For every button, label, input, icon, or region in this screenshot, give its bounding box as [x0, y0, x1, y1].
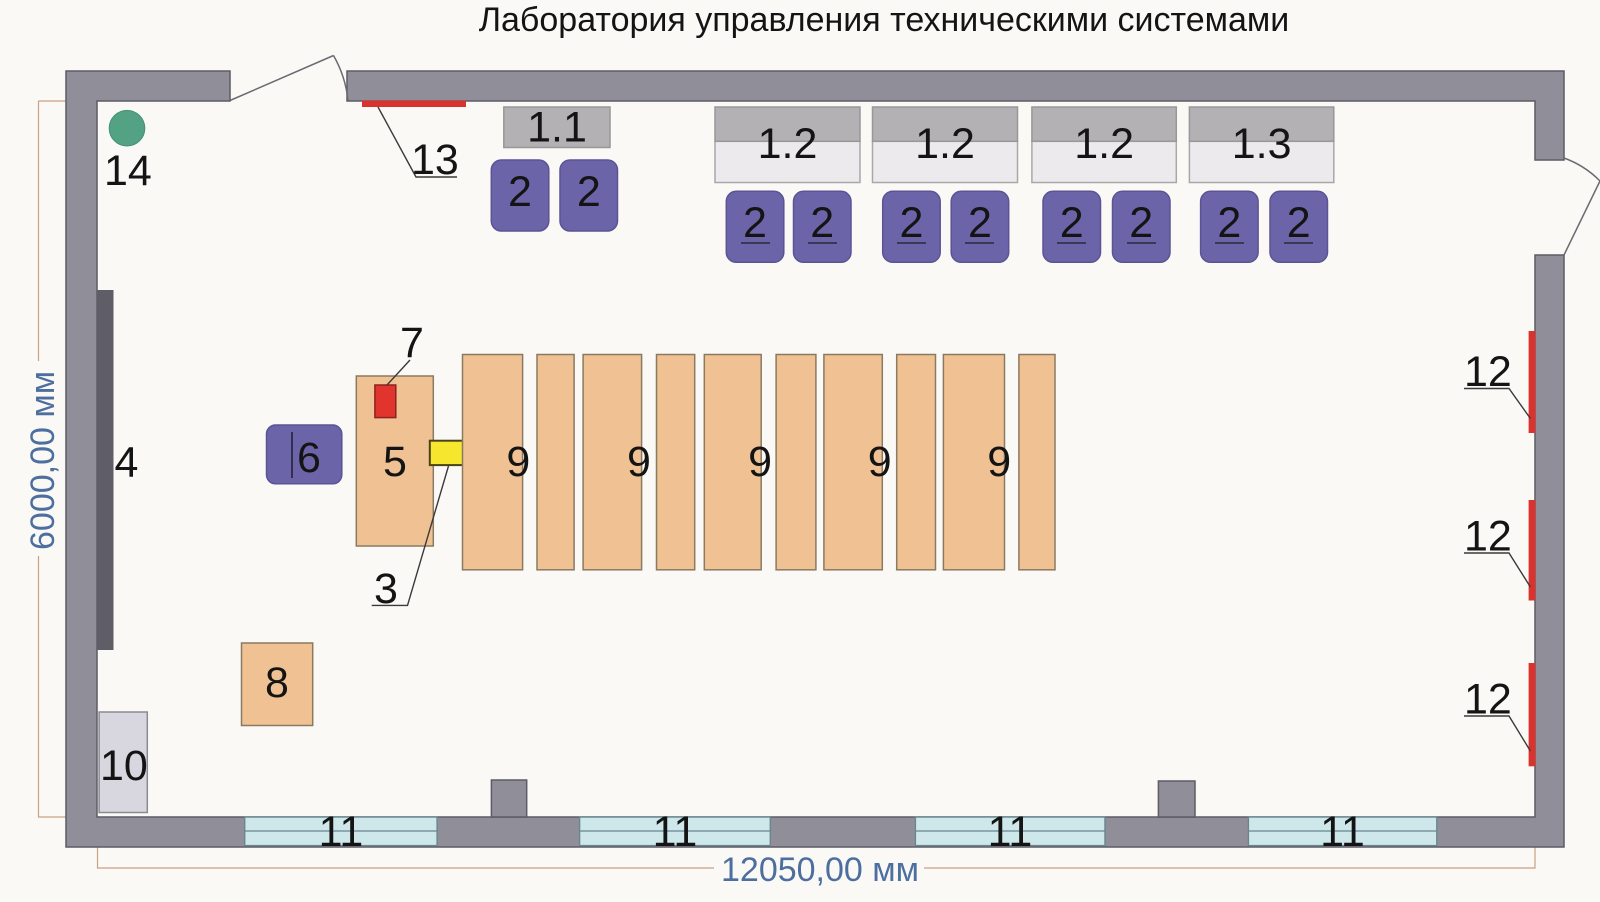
svg-text:8: 8 — [265, 659, 289, 707]
svg-text:13: 13 — [411, 136, 459, 184]
svg-text:12: 12 — [1464, 676, 1512, 724]
svg-text:2: 2 — [810, 199, 834, 247]
svg-text:5: 5 — [383, 438, 407, 486]
svg-text:12: 12 — [1464, 513, 1512, 561]
svg-text:2: 2 — [1287, 199, 1311, 247]
svg-text:2: 2 — [577, 168, 601, 216]
svg-text:6: 6 — [297, 434, 321, 482]
svg-text:11: 11 — [319, 808, 364, 856]
svg-text:Лаборатория управления техниче: Лаборатория управления техническими сист… — [479, 1, 1290, 39]
svg-text:2: 2 — [1129, 199, 1153, 247]
svg-text:1.2: 1.2 — [758, 120, 818, 168]
svg-text:1.3: 1.3 — [1232, 120, 1292, 168]
svg-text:9: 9 — [506, 438, 530, 486]
svg-text:6000,00 мм: 6000,00 мм — [24, 371, 62, 550]
svg-text:11: 11 — [1320, 808, 1365, 856]
svg-text:14: 14 — [104, 147, 152, 195]
svg-text:2: 2 — [743, 199, 767, 247]
svg-text:1.1: 1.1 — [527, 104, 587, 152]
svg-text:9: 9 — [868, 438, 892, 486]
svg-text:2: 2 — [508, 168, 532, 216]
svg-text:2: 2 — [899, 199, 923, 247]
svg-text:10: 10 — [100, 742, 148, 790]
svg-text:11: 11 — [988, 808, 1033, 856]
svg-text:7: 7 — [400, 319, 424, 367]
svg-text:2: 2 — [968, 199, 992, 247]
svg-text:9: 9 — [987, 438, 1011, 486]
svg-text:11: 11 — [653, 808, 698, 856]
svg-text:9: 9 — [748, 438, 772, 486]
svg-text:4: 4 — [115, 439, 139, 487]
svg-text:3: 3 — [374, 565, 398, 613]
svg-text:12: 12 — [1464, 348, 1512, 396]
svg-text:2: 2 — [1060, 199, 1084, 247]
svg-text:1.2: 1.2 — [1074, 120, 1134, 168]
svg-text:12050,00 мм: 12050,00 мм — [721, 851, 919, 889]
svg-text:2: 2 — [1217, 199, 1241, 247]
svg-text:1.2: 1.2 — [915, 120, 975, 168]
svg-text:9: 9 — [627, 438, 651, 486]
